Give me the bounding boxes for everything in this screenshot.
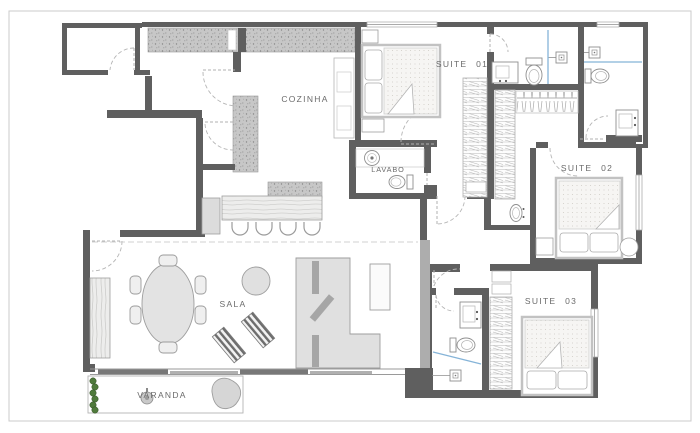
dining-chair [130, 306, 141, 324]
faucet-dot [476, 311, 478, 313]
toilet [389, 175, 413, 189]
pouf [242, 267, 270, 295]
double-bed [522, 317, 592, 395]
cabinet [492, 271, 511, 282]
sofa-cushion [312, 335, 319, 367]
refrigerator [202, 198, 220, 234]
faucet-dot [634, 124, 636, 126]
pillow [365, 50, 382, 80]
room-label-varanda: VARANDA [137, 390, 187, 400]
pillow [560, 233, 588, 252]
nightstand [536, 238, 553, 255]
wall-niche [228, 30, 236, 50]
room-label-suite03: SUITE 03 [525, 296, 577, 306]
half-wall [420, 240, 430, 368]
sliding-door-panel [240, 370, 308, 375]
sideboard [90, 278, 110, 358]
sliding-door-panel [98, 370, 168, 375]
faucet-dot [476, 318, 478, 320]
toilet-tank [450, 338, 456, 352]
wardrobe-shelves [463, 78, 487, 197]
cabinet [492, 284, 511, 294]
round-sink [365, 151, 380, 166]
pillow [558, 371, 587, 389]
hatched-wall [233, 96, 258, 172]
toilet [585, 69, 609, 83]
sliding-door-panel [170, 371, 238, 374]
toilet-tank [526, 58, 542, 65]
toilet [526, 58, 542, 85]
tv-cabinet [370, 264, 390, 310]
dining-chair [195, 306, 206, 324]
toilet [450, 338, 475, 352]
faucet-dot [499, 80, 501, 82]
toilet-bowl [389, 176, 405, 189]
wall-basin [510, 205, 522, 222]
room-label-sala: SALA [220, 299, 247, 309]
floor-plan-page: COZINHA SUITE 01 [0, 0, 700, 433]
room-label-lavabo: LAVABO [371, 165, 405, 174]
pillow [590, 233, 618, 252]
dining-table [142, 264, 194, 344]
faucet-dot [523, 216, 525, 218]
pillow [365, 83, 382, 113]
floor-plan-drawing: COZINHA SUITE 01 [0, 0, 700, 433]
dining-chair [159, 255, 177, 266]
cabinet [466, 182, 486, 192]
dining-chair [159, 342, 177, 353]
nightstand [620, 238, 638, 256]
sliding-door-panel [310, 371, 372, 374]
double-bed [362, 45, 440, 117]
wardrobe-shelves [495, 90, 515, 199]
room-varanda: VARANDA [88, 376, 243, 413]
toilet-tank [585, 69, 591, 83]
sofa-cushion [312, 261, 319, 294]
faucet-dot [523, 208, 525, 210]
toilet-bowl [526, 65, 542, 85]
pillow [527, 371, 556, 389]
faucet-dot [634, 117, 636, 119]
faucet-dot [505, 80, 507, 82]
nightstand [362, 30, 378, 43]
nightstand [362, 119, 384, 132]
room-label-cozinha: COZINHA [281, 94, 328, 104]
room-label-suite01: SUITE 01 [436, 59, 488, 69]
hatched-wall [148, 28, 355, 52]
dining-chair [195, 276, 206, 294]
room-label-suite02: SUITE 02 [561, 163, 613, 173]
hangers [517, 92, 577, 112]
wardrobe-shelves [490, 297, 512, 389]
double-bed [556, 178, 622, 258]
dining-chair [130, 276, 141, 294]
toilet-tank [407, 175, 413, 189]
kitchen-island [222, 196, 322, 220]
